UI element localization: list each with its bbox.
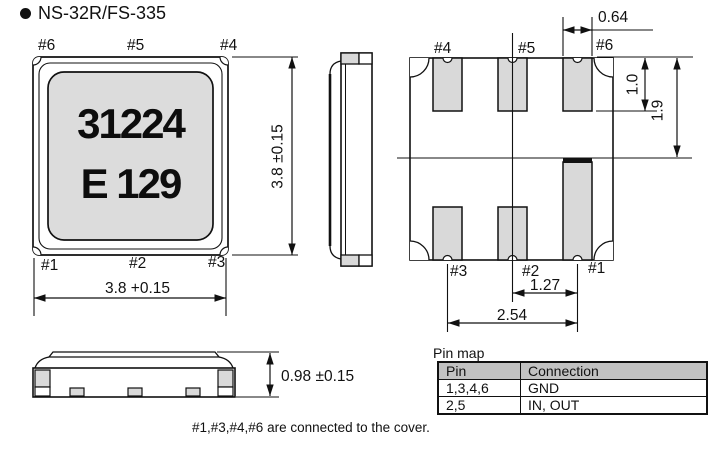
front-width-dim: 3.8 +0.15 <box>85 280 190 298</box>
bottom-pin-1-label: #1 <box>588 260 605 278</box>
page-title: NS-32R/FS-335 <box>38 3 166 24</box>
marking-text-line2: E 129 <box>48 158 213 210</box>
pin-map-title: Pin map <box>433 345 484 361</box>
profile-height-dim: 0.98 ±0.15 <box>281 368 354 386</box>
pin-map-header-connection: Connection <box>521 362 708 380</box>
marking-text-line1: 31224 <box>48 98 213 150</box>
bottom-pin-3-label: #3 <box>450 263 467 281</box>
front-height-dim: 3.8 ±0.15 <box>270 112 287 202</box>
datasheet-drawing: NS-32R/FS-335 #6 #5 #4 #1 #2 #3 31224 E … <box>0 0 723 458</box>
front-pin-5-label: #5 <box>127 37 144 55</box>
edge-to-center-dim: 1.9 <box>651 96 666 126</box>
pin-map-table: Pin Connection 1,3,4,6 GND 2,5 IN, OUT <box>437 361 708 415</box>
pad-width-dim: 0.64 <box>598 9 628 27</box>
bottom-pin-4-label: #4 <box>434 40 451 58</box>
bottom-pin-5-label: #5 <box>518 40 535 58</box>
front-pin-1-label: #1 <box>41 257 58 275</box>
cover-connection-note: #1,#3,#4,#6 are connected to the cover. <box>192 420 430 435</box>
front-pin-3-label: #3 <box>208 254 225 272</box>
front-pin-2-label: #2 <box>129 255 146 273</box>
pin-map-cell-pins-gnd: 1,3,4,6 <box>438 380 521 397</box>
front-pin-6-label: #6 <box>38 37 55 55</box>
pin-map-header-pin: Pin <box>438 362 521 380</box>
pin-map-cell-conn-io: IN, OUT <box>521 397 708 415</box>
pin-map-cell-pins-io: 2,5 <box>438 397 521 415</box>
front-pin-4-label: #4 <box>220 37 237 55</box>
pitch-full-dim: 2.54 <box>482 307 542 325</box>
title-bullet-icon <box>20 8 31 19</box>
pad-length-dim: 1.0 <box>626 70 641 100</box>
pin-map-cell-conn-gnd: GND <box>521 380 708 397</box>
side-view-drawing <box>330 53 372 266</box>
pitch-half-dim: 1.27 <box>515 277 575 295</box>
profile-view-drawing <box>33 352 279 397</box>
bottom-pin-6-label: #6 <box>596 37 613 55</box>
